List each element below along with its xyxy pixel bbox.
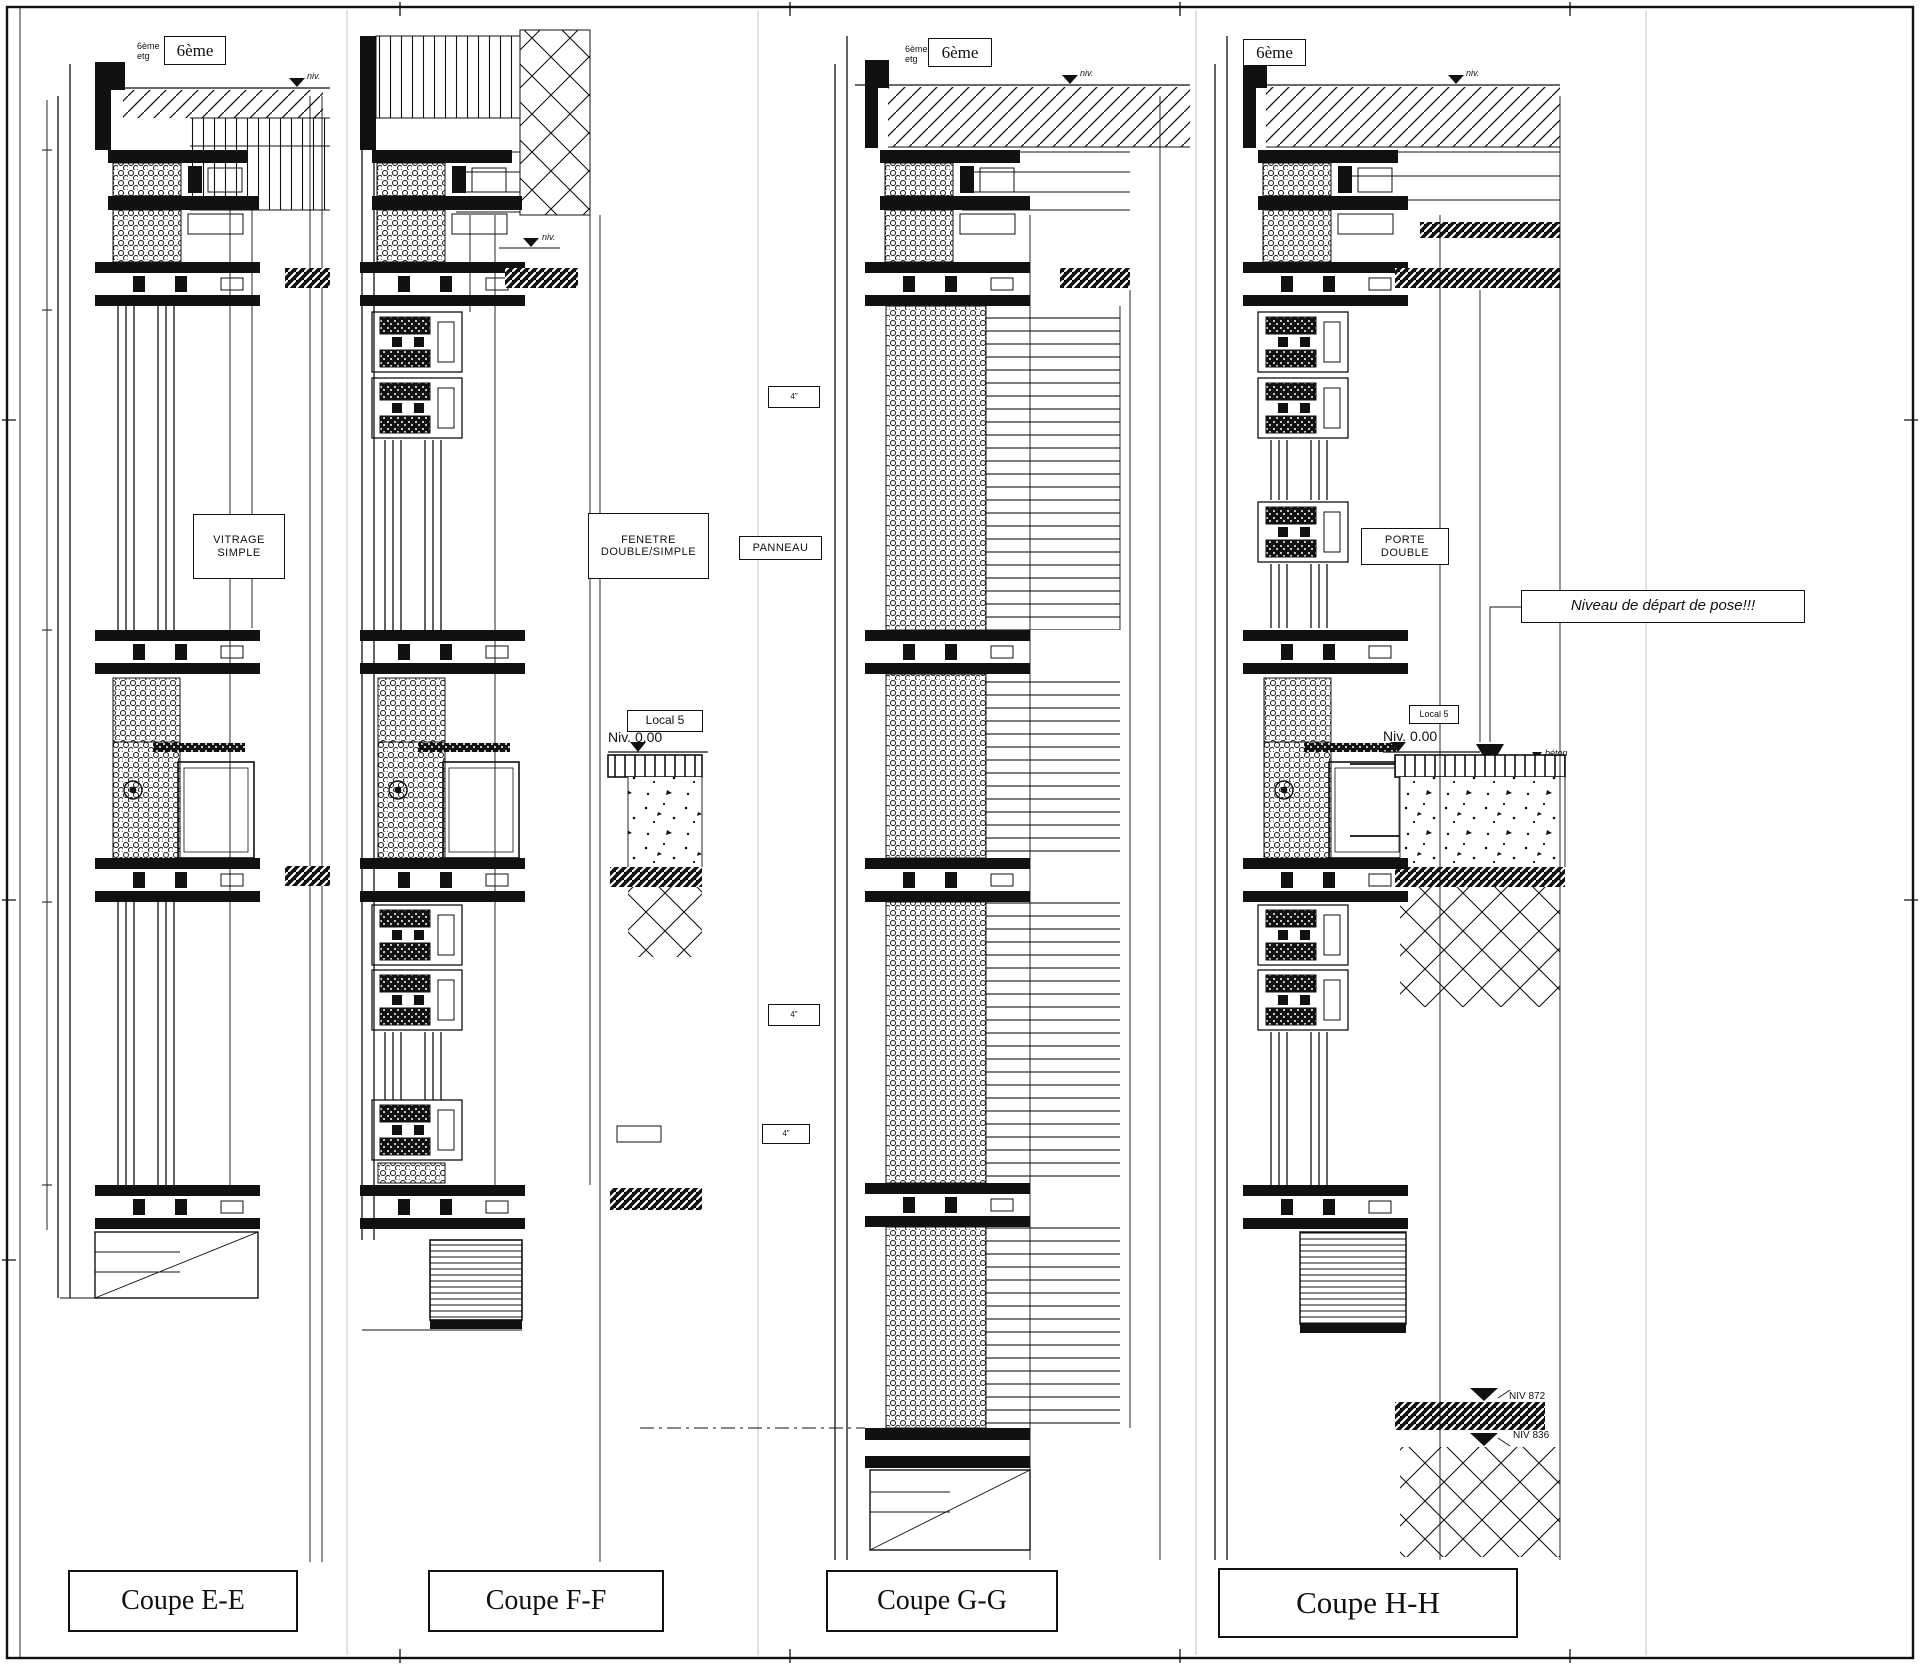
title-coupe-g: Coupe G-G [826,1570,1058,1632]
component-label-porte: PORTE DOUBLE [1361,528,1449,565]
niv-marker-h: niv. [1466,68,1479,78]
title-coupe-h: Coupe H-H [1218,1568,1518,1638]
beton-marker-h: béton [1545,748,1568,758]
detail-marker-1: 4" [768,386,820,408]
detail-marker-3: 4" [762,1124,810,1144]
niv-872-label: NIV 872 [1509,1391,1545,1402]
coupe-h-linework [1215,36,1565,1560]
room-label-h: Local 5 [1409,705,1459,724]
component-label-vitrage: VITRAGE SIMPLE [193,514,285,579]
level-label-h: Niv. 0.00 [1383,729,1437,745]
niv-marker-g: niv. [1080,68,1093,78]
section-linework [0,0,1920,1665]
coupe-g-linework [640,36,1190,1560]
title-coupe-f: Coupe F-F [428,1570,664,1632]
floor-small-g: 6ème etg [905,44,928,64]
floor-tag-g: 6ème [928,38,992,67]
annotation-niveau-depart: Niveau de départ de pose!!! [1521,590,1805,623]
floor-tag-h: 6ème [1243,39,1306,66]
coupe-f-linework [360,30,708,1562]
niv-836-label: NIV 836 [1513,1430,1549,1441]
coupe-e-linework [42,62,330,1562]
component-label-panneau: PANNEAU [739,536,822,560]
drawing-sheet: 6ème etg 6ème 6ème etg 6ème 6ème niv. ni… [0,0,1920,1665]
component-label-fenetre: FENETRE DOUBLE/SIMPLE [588,513,709,579]
title-coupe-e: Coupe E-E [68,1570,298,1632]
floor-tag-e: 6ème [164,36,226,65]
floor-small-e: 6ème etg [137,41,160,61]
level-label-f: Niv. 0.00 [608,730,662,746]
detail-marker-2: 4" [768,1004,820,1026]
niv-marker-f: niv. [542,232,555,242]
niv-marker-e: niv. [307,71,320,81]
